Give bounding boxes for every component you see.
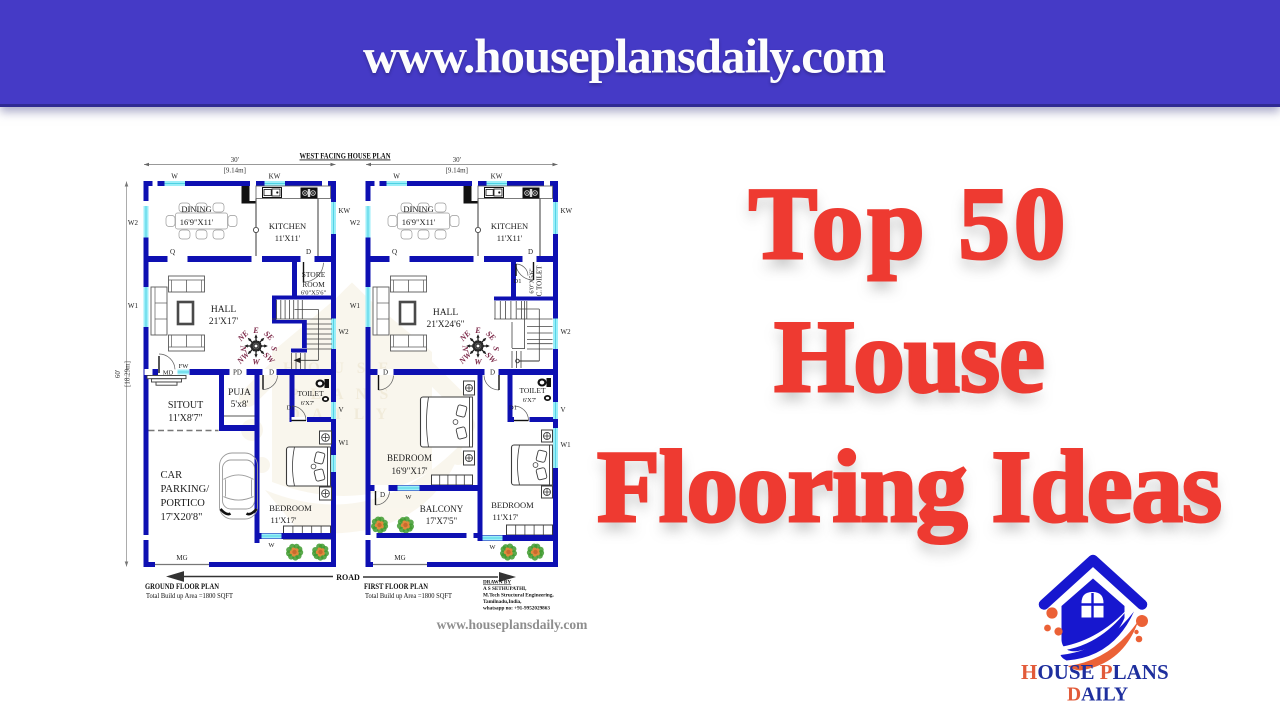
svg-text:BEDROOM: BEDROOM xyxy=(387,453,432,463)
svg-text:BALCONY: BALCONY xyxy=(420,504,464,514)
svg-text:HALL: HALL xyxy=(433,308,459,318)
svg-text:D: D xyxy=(528,248,533,256)
svg-text:DRAWN BY: DRAWN BY xyxy=(483,580,511,586)
svg-text:6'X7': 6'X7' xyxy=(301,400,315,407)
svg-text:W1: W1 xyxy=(350,302,361,310)
svg-text:D: D xyxy=(490,369,495,377)
svg-text:KW: KW xyxy=(339,207,351,215)
svg-text:N: N xyxy=(461,345,470,353)
svg-text:KW: KW xyxy=(491,173,503,181)
svg-text:N: N xyxy=(239,345,248,353)
svg-text:16'9"X11': 16'9"X11' xyxy=(180,217,214,227)
svg-text:V: V xyxy=(339,406,344,414)
svg-text:11'X11': 11'X11' xyxy=(275,233,301,243)
svg-text:NE: NE xyxy=(457,328,472,343)
svg-text:Total Build up Area =1800 SQFT: Total Build up Area =1800 SQFT xyxy=(365,591,452,600)
svg-text:V: V xyxy=(561,406,566,414)
svg-text:NE: NE xyxy=(235,328,250,343)
svg-text:6'X7': 6'X7' xyxy=(523,397,537,404)
svg-text:D: D xyxy=(383,369,388,377)
svg-text:Q: Q xyxy=(170,248,175,256)
svg-text:FIRST FLOOR PLAN: FIRST FLOOR PLAN xyxy=(364,581,429,591)
svg-text:TOILET: TOILET xyxy=(519,386,546,395)
svg-text:SITOUT: SITOUT xyxy=(168,400,203,411)
svg-text:DINING: DINING xyxy=(403,204,433,214)
svg-text:W2: W2 xyxy=(350,219,361,227)
svg-text:W: W xyxy=(489,544,496,551)
svg-text:30': 30' xyxy=(231,156,239,164)
svg-text:GROUND FLOOR PLAN: GROUND FLOOR PLAN xyxy=(145,581,220,591)
svg-text:5'x8': 5'x8' xyxy=(231,400,249,410)
svg-text:11'X11': 11'X11' xyxy=(497,233,523,243)
svg-text:S: S xyxy=(492,346,501,351)
svg-text:HOUSE PLANS: HOUSE PLANS xyxy=(1021,660,1169,684)
svg-text:[9.14m]: [9.14m] xyxy=(446,167,468,175)
svg-text:KW: KW xyxy=(269,173,281,181)
svg-text:PUJA: PUJA xyxy=(228,388,251,398)
svg-text:KW: KW xyxy=(561,207,573,215)
svg-text:DAILY: DAILY xyxy=(1067,685,1128,706)
svg-text:KITCHEN: KITCHEN xyxy=(269,221,306,231)
svg-text:Q: Q xyxy=(392,248,397,256)
svg-text:D1: D1 xyxy=(514,278,522,285)
svg-text:[9.14m]: [9.14m] xyxy=(224,167,246,175)
svg-text:DINING: DINING xyxy=(181,204,211,214)
svg-text:www.houseplansdaily.com: www.houseplansdaily.com xyxy=(437,617,589,632)
svg-text:PARKING/: PARKING/ xyxy=(161,484,210,495)
svg-text:WEST FACING HOUSE PLAN: WEST FACING HOUSE PLAN xyxy=(300,151,392,161)
svg-text:D1: D1 xyxy=(287,405,295,412)
svg-text:Total Build up Area =1800 SQFT: Total Build up Area =1800 SQFT xyxy=(146,591,233,600)
svg-text:FW: FW xyxy=(179,363,190,370)
svg-text:W: W xyxy=(405,494,412,501)
svg-text:D: D xyxy=(269,369,274,377)
svg-text:PORTICO: PORTICO xyxy=(161,498,206,509)
svg-text:W2: W2 xyxy=(128,219,139,227)
svg-text:A S SETHUPATHI,: A S SETHUPATHI, xyxy=(483,586,527,592)
svg-text:D: D xyxy=(380,491,385,499)
svg-text:16'9"X17': 16'9"X17' xyxy=(392,466,428,476)
svg-text:D: D xyxy=(306,248,311,256)
svg-text:[18.29m]: [18.29m] xyxy=(124,361,132,387)
svg-text:MG: MG xyxy=(394,554,405,562)
svg-text:D1: D1 xyxy=(509,405,517,412)
svg-text:W1: W1 xyxy=(561,441,572,449)
svg-text:W: W xyxy=(268,542,275,549)
svg-text:21'X17': 21'X17' xyxy=(209,317,239,327)
svg-text:6'0"X5'6": 6'0"X5'6" xyxy=(301,290,327,297)
svg-text:60': 60' xyxy=(114,370,122,378)
svg-text:S: S xyxy=(270,346,279,351)
svg-text:W: W xyxy=(393,173,400,181)
svg-text:16'9"X11': 16'9"X11' xyxy=(402,217,436,227)
svg-text:W: W xyxy=(474,358,482,367)
svg-text:W1: W1 xyxy=(339,439,350,447)
svg-text:Tamilnadu,India,: Tamilnadu,India, xyxy=(483,599,522,605)
svg-text:ROOM: ROOM xyxy=(302,280,325,289)
svg-text:W2: W2 xyxy=(339,328,350,336)
svg-text:11'X17': 11'X17' xyxy=(271,515,297,525)
svg-text:HALL: HALL xyxy=(211,305,237,315)
svg-text:11'X8'7": 11'X8'7" xyxy=(168,413,203,424)
svg-text:STORE: STORE xyxy=(302,270,326,279)
svg-text:W1: W1 xyxy=(128,302,139,310)
svg-text:11'X17': 11'X17' xyxy=(493,512,519,522)
svg-text:17'X7'5": 17'X7'5" xyxy=(426,516,458,526)
svg-text:PD: PD xyxy=(233,369,242,377)
svg-text:BEDROOM: BEDROOM xyxy=(269,503,312,513)
svg-text:ROAD: ROAD xyxy=(336,573,360,582)
svg-text:SE: SE xyxy=(262,329,276,343)
svg-text:6'0"X5'6": 6'0"X5'6" xyxy=(529,268,536,294)
svg-text:W: W xyxy=(171,173,178,181)
svg-text:KITCHEN: KITCHEN xyxy=(491,221,528,231)
svg-text:17'X20'8": 17'X20'8" xyxy=(161,512,203,523)
svg-text:MG: MG xyxy=(176,554,187,562)
svg-text:21'X24'6": 21'X24'6" xyxy=(427,320,465,330)
svg-text:E: E xyxy=(474,326,481,335)
svg-text:W: W xyxy=(252,358,260,367)
svg-text:M.Tech Structural Engineering,: M.Tech Structural Engineering, xyxy=(483,593,554,599)
svg-text:C.TOILET: C.TOILET xyxy=(536,265,544,297)
svg-text:TOILET: TOILET xyxy=(297,389,324,398)
svg-text:SE: SE xyxy=(484,329,498,343)
svg-text:E: E xyxy=(252,326,259,335)
svg-text:CAR: CAR xyxy=(161,470,183,481)
svg-text:W2: W2 xyxy=(561,328,572,336)
svg-text:whatsapp no: +91-9952029863: whatsapp no: +91-9952029863 xyxy=(483,606,550,612)
svg-text:BEDROOM: BEDROOM xyxy=(491,500,534,510)
svg-text:30': 30' xyxy=(453,156,461,164)
